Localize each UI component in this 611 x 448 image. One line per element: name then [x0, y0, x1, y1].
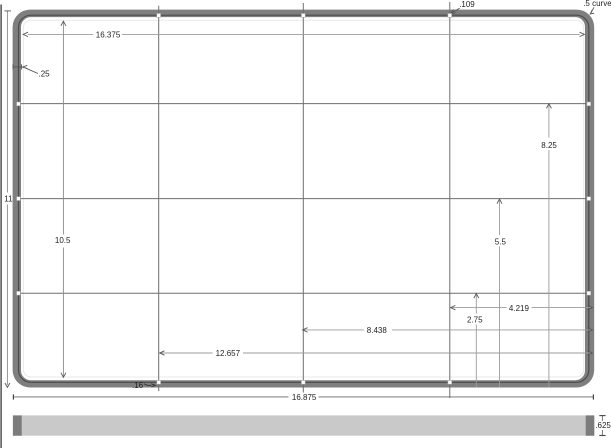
svg-text:16.375: 16.375 — [96, 30, 121, 39]
svg-text:.625: .625 — [595, 421, 611, 430]
svg-text:.109: .109 — [459, 0, 475, 9]
svg-text:12.657: 12.657 — [216, 349, 241, 358]
svg-text:.5 curve: .5 curve — [583, 0, 611, 8]
svg-text:.25: .25 — [39, 69, 51, 78]
svg-text:4.219: 4.219 — [509, 304, 530, 313]
svg-text:10.5: 10.5 — [55, 236, 71, 245]
svg-text:.16: .16 — [132, 381, 144, 390]
svg-text:8.25: 8.25 — [541, 141, 557, 150]
svg-text:16.875: 16.875 — [292, 393, 317, 402]
svg-text:5.5: 5.5 — [495, 237, 507, 246]
svg-text:2.75: 2.75 — [467, 316, 483, 325]
svg-text:8.438: 8.438 — [367, 326, 388, 335]
svg-text:11: 11 — [4, 194, 13, 203]
